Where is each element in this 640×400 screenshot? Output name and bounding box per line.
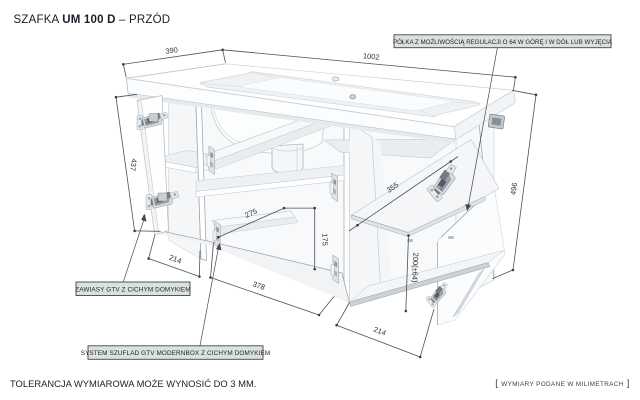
svg-text:TOLERANCJA WYMIAROWA MOŻE WYNO: TOLERANCJA WYMIAROWA MOŻE WYNOSIĆ DO 3 M… xyxy=(10,378,256,389)
svg-text:214: 214 xyxy=(372,325,387,338)
svg-text:496: 496 xyxy=(509,182,520,196)
svg-text:175: 175 xyxy=(320,233,329,246)
svg-text:SZAFKA UM 100 D – PRZÓD: SZAFKA UM 100 D – PRZÓD xyxy=(14,13,171,26)
svg-text:200(±64): 200(±64) xyxy=(410,252,420,283)
svg-text:437: 437 xyxy=(128,158,139,172)
svg-text:[ WYMIARY PODANE W MILIMETRACH: [ WYMIARY PODANE W MILIMETRACH ] xyxy=(495,378,629,389)
svg-text:1002: 1002 xyxy=(363,51,380,62)
svg-text:SYSTEM SZUFLAD GTV MODERNBOX Z: SYSTEM SZUFLAD GTV MODERNBOX Z CICHYM DO… xyxy=(81,350,271,357)
svg-text:214: 214 xyxy=(168,253,183,266)
svg-text:390: 390 xyxy=(165,45,179,56)
svg-text:ZAWIASY GTV Z CICHYM DOMYKIEM: ZAWIASY GTV Z CICHYM DOMYKIEM xyxy=(75,286,190,293)
svg-text:PÓŁKA Z MOŻLIWOŚCIĄ REGULACJI: PÓŁKA Z MOŻLIWOŚCIĄ REGULACJI O 64 W GÓR… xyxy=(393,38,613,46)
svg-text:378: 378 xyxy=(251,279,266,292)
